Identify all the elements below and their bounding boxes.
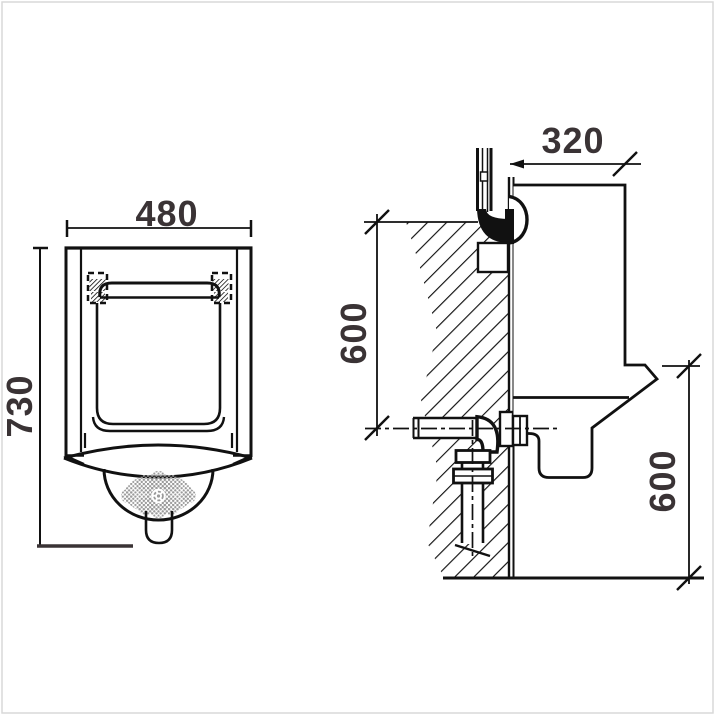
front-width-dimension: 480 — [67, 193, 251, 237]
outlet-height-dimension: 600 — [642, 354, 701, 590]
hanger-bar — [100, 283, 220, 298]
spigot-collar — [513, 416, 527, 445]
drain-flower — [121, 471, 196, 518]
pipe-break-symbol — [481, 172, 488, 181]
drain-center-dot — [157, 494, 160, 497]
urinal-installation-drawing: 480 730 — [0, 0, 715, 715]
front-height-label: 730 — [0, 374, 40, 437]
wall-hatch-section — [400, 222, 508, 578]
technical-drawing-canvas: 480 730 — [0, 0, 715, 715]
pipe-clamp — [478, 243, 508, 272]
depth-dimension: 320 — [510, 120, 641, 176]
outlet-height-label: 600 — [642, 449, 683, 512]
inlet-height-label: 600 — [333, 301, 374, 364]
side-view: 600 — [333, 120, 704, 590]
front-view: 480 730 — [0, 193, 253, 546]
bowl-opening — [93, 303, 224, 431]
supply-pipe — [477, 148, 509, 272]
side-urinal-profile — [514, 185, 658, 478]
dim-arrow — [510, 160, 524, 169]
front-width-label: 480 — [135, 193, 198, 234]
depth-label: 320 — [541, 120, 604, 161]
